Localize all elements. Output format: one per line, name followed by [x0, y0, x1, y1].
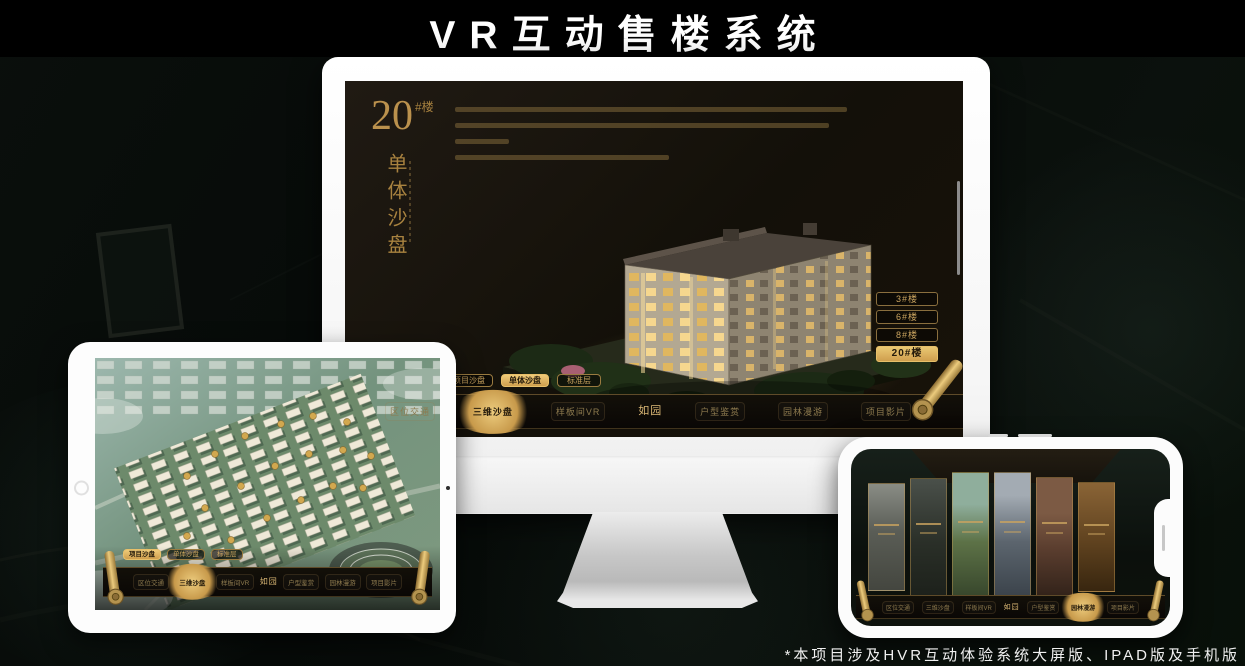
phone-brand-logo-text: 如园	[1004, 604, 1020, 611]
tablet-nav-floorplans[interactable]: 户型鉴赏	[283, 574, 319, 590]
poster-canvas: VR互动售楼系统 20#楼 单体沙盘	[0, 0, 1245, 666]
block-title: 20#楼	[371, 95, 434, 137]
page-title: VR互动售楼系统	[0, 4, 1245, 60]
phone-power-button	[1018, 434, 1052, 437]
nav-item-project-film[interactable]: 项目影片	[861, 402, 911, 421]
tablet-nav-3d-sandbox[interactable]: 三维沙盘	[174, 574, 210, 590]
building-button-3[interactable]: 3#楼	[876, 292, 938, 306]
tablet-camera-icon	[446, 486, 450, 490]
brand-logo-text: 如园	[638, 406, 662, 417]
tablet-nav-garden-tour[interactable]: 园林漫游	[325, 574, 361, 590]
block-number: 20	[371, 93, 413, 139]
tablet-home-button[interactable]	[74, 480, 89, 495]
tablet-tab-project-sandbox[interactable]: 项目沙盘	[123, 549, 161, 560]
tablet-sandbox-subtabs: 项目沙盘 单体沙盘 标准层	[123, 549, 243, 560]
building-selector: 3#楼 6#楼 8#楼 20#楼	[876, 292, 938, 362]
panorama-panel-6[interactable]	[1078, 482, 1115, 592]
panorama-panel-5[interactable]	[1036, 477, 1073, 596]
tab-standard-floor[interactable]: 标准层	[557, 374, 601, 387]
tablet-tab-single-sandbox[interactable]: 单体沙盘	[167, 549, 205, 560]
nav-item-location[interactable]: 区位交通	[385, 402, 435, 421]
phone-volume-button	[988, 434, 1008, 437]
footnote: *本项目涉及HVR互动体验系统大屏版、IPAD版及手机版	[785, 644, 1240, 665]
tablet-nav-project-film[interactable]: 项目影片	[366, 574, 402, 590]
description-paragraph	[455, 107, 847, 171]
phone-nav-project-film[interactable]: 项目影片	[1107, 601, 1139, 614]
tablet-nav-showroom-vr[interactable]: 样板间VR	[216, 574, 255, 590]
phone-brand-logo: 如园	[1004, 604, 1020, 611]
tablet-device: 项目沙盘 单体沙盘 标准层 区位交通 三维沙盘 样板间VR 如园 户型鉴赏 园林…	[68, 342, 456, 633]
building-button-6[interactable]: 6#楼	[876, 310, 938, 324]
phone-nav-showroom-vr[interactable]: 样板间VR	[962, 601, 996, 614]
nav-item-showroom-vr[interactable]: 样板间VR	[551, 402, 606, 421]
phone-nav-floorplans[interactable]: 户型鉴赏	[1027, 601, 1059, 614]
panorama-panel-2[interactable]	[910, 478, 947, 596]
tablet-screen: 项目沙盘 单体沙盘 标准层 区位交通 三维沙盘 样板间VR 如园 户型鉴赏 园林…	[95, 358, 440, 610]
background-certificate-frame	[96, 224, 184, 338]
phone-speaker-icon	[1162, 525, 1165, 551]
block-subtitle-vertical: 单体沙盘	[381, 153, 410, 261]
panorama-panel-3[interactable]	[952, 472, 989, 599]
building-button-8[interactable]: 8#楼	[876, 328, 938, 342]
tablet-brand-logo-text: 如园	[260, 578, 278, 586]
tablet-navbar: 区位交通 三维沙盘 样板间VR 如园 户型鉴赏 园林漫游 项目影片	[103, 567, 432, 597]
tab-single-sandbox[interactable]: 单体沙盘	[501, 374, 549, 387]
phone-nav-garden-tour[interactable]: 园林漫游	[1067, 601, 1099, 614]
tablet-tab-standard-floor[interactable]: 标准层	[211, 549, 243, 560]
phone-device: 区位交通 三维沙盘 样板间VR 如园 户型鉴赏 园林漫游 项目影片	[838, 437, 1183, 638]
nav-item-floorplans[interactable]: 户型鉴赏	[695, 402, 745, 421]
phone-notch	[1154, 499, 1170, 577]
panorama-panel-1[interactable]	[868, 483, 905, 591]
panorama-panel-strip	[868, 471, 1115, 599]
phone-nav-3d-sandbox[interactable]: 三维沙盘	[922, 601, 954, 614]
phone-screen: 区位交通 三维沙盘 样板间VR 如园 户型鉴赏 园林漫游 项目影片	[851, 449, 1170, 626]
tablet-brand-logo: 如园	[260, 578, 278, 586]
brand-logo: 如园	[638, 406, 662, 417]
building-button-20[interactable]: 20#楼	[876, 346, 938, 362]
nav-item-garden-tour[interactable]: 园林漫游	[778, 402, 828, 421]
screen-scrollbar[interactable]	[957, 181, 960, 275]
block-subtitle-english-decor	[409, 161, 411, 245]
phone-navbar: 区位交通 三维沙盘 样板间VR 如园 户型鉴赏 园林漫游 项目影片	[856, 595, 1165, 619]
sandbox-subtabs: 项目沙盘 单体沙盘 标准层	[445, 374, 601, 387]
phone-nav-location[interactable]: 区位交通	[882, 601, 914, 614]
panorama-panel-4[interactable]	[994, 472, 1031, 599]
nav-item-3d-sandbox[interactable]: 三维沙盘	[468, 402, 518, 421]
block-unit: #楼	[415, 100, 434, 114]
